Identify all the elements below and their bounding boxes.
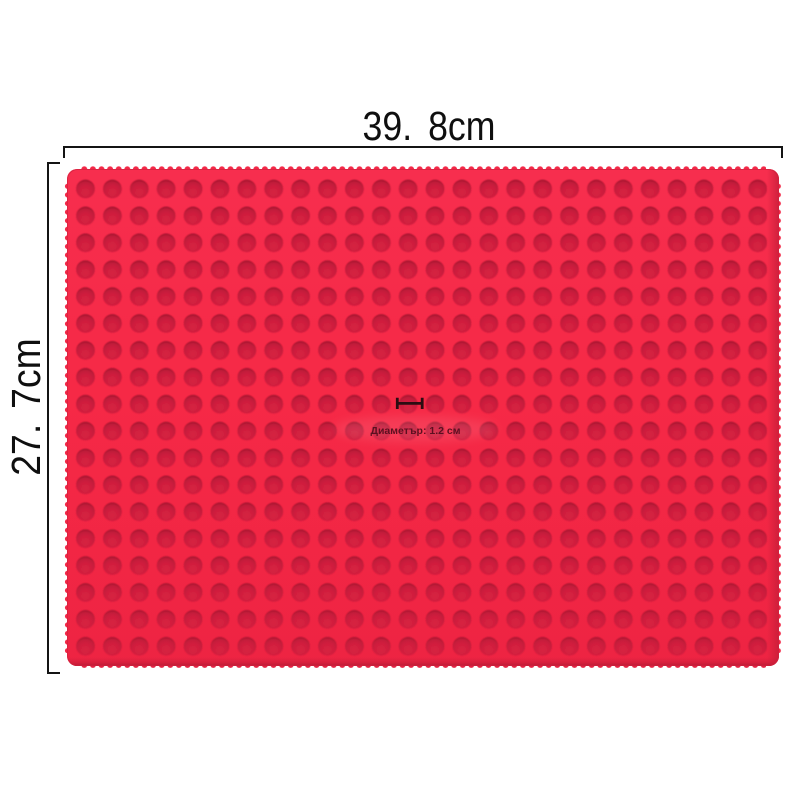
- svg-text:39. 8cm: 39. 8cm: [363, 104, 496, 150]
- svg-text:27. 7cm: 27. 7cm: [3, 338, 49, 476]
- svg-text:Диаметър: 1.2 см: Диаметър: 1.2 см: [371, 425, 461, 437]
